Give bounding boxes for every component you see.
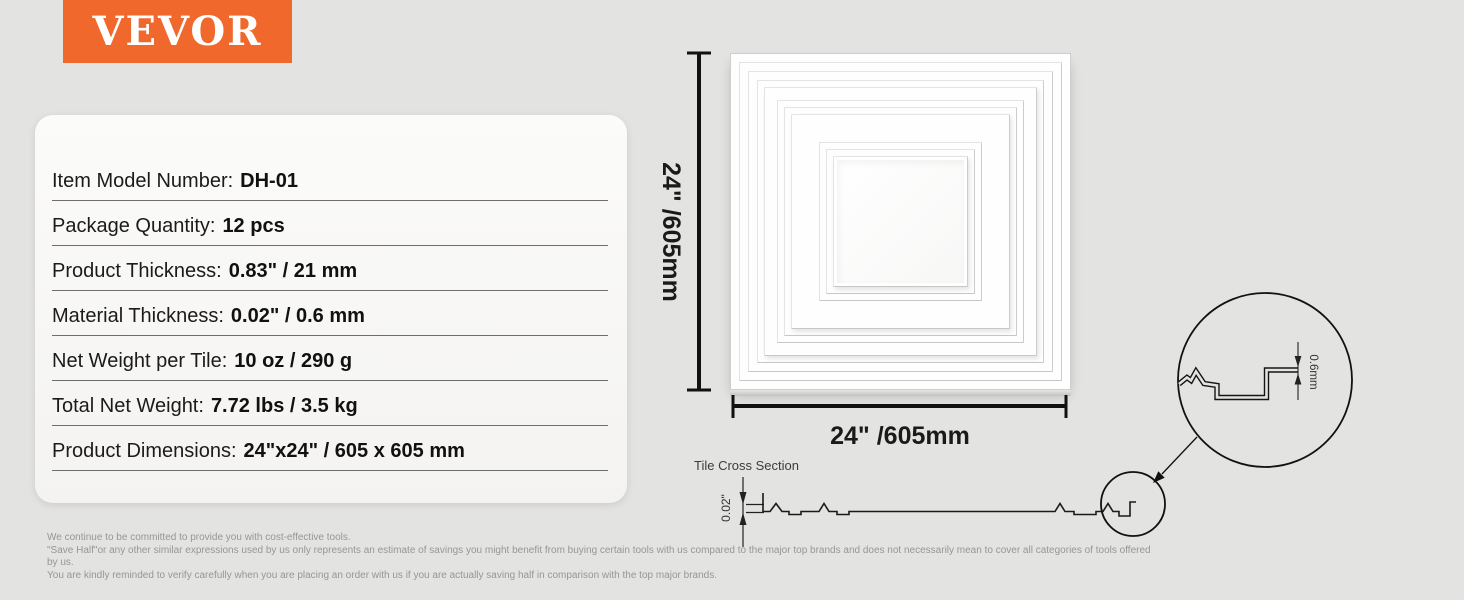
magnifier-leader <box>1153 437 1197 483</box>
magnifier-circle <box>1178 293 1352 467</box>
cross-section-thickness-label: 0.02" <box>719 494 733 522</box>
spec-row-product-thickness: Product Thickness: 0.83" / 21 mm <box>52 246 608 291</box>
spec-label: Product Dimensions: <box>52 440 237 463</box>
dim-arrow-down <box>740 492 747 505</box>
spec-label: Product Thickness: <box>52 260 222 283</box>
tile-center-panel <box>837 160 964 283</box>
tile-bottom-edge <box>730 390 1071 396</box>
cross-section-profile <box>763 493 1136 516</box>
spec-label: Total Net Weight: <box>52 395 204 418</box>
spec-value: 24"x24" / 605 x 605 mm <box>244 440 465 463</box>
spec-value: 0.83" / 21 mm <box>229 260 357 283</box>
spec-value: 0.02" / 0.6 mm <box>231 305 365 328</box>
spec-label: Material Thickness: <box>52 305 224 328</box>
detail-thickness-label: 0.6mm <box>1307 354 1319 389</box>
spec-row-quantity: Package Quantity: 12 pcs <box>52 201 608 246</box>
spec-label: Net Weight per Tile: <box>52 350 227 373</box>
dim-arrow-up <box>740 513 747 526</box>
ceiling-tile-diagram <box>730 53 1071 390</box>
footer-line: You are kindly reminded to verify carefu… <box>47 570 1157 583</box>
footer-disclaimer: We continue to be committed to provide y… <box>47 532 1157 582</box>
spec-value: DH-01 <box>240 170 298 193</box>
product-infographic: VEVOR Item Model Number: DH-01 Package Q… <box>0 0 1464 600</box>
spec-card: Item Model Number: DH-01 Package Quantit… <box>35 115 627 503</box>
vevor-logo-text: VEVOR <box>93 12 263 52</box>
footer-line: We continue to be committed to provide y… <box>47 532 1157 545</box>
vevor-logo: VEVOR <box>63 0 292 63</box>
tile-width-label: 24" /605mm <box>830 422 970 450</box>
cross-section-title: Tile Cross Section <box>694 458 799 473</box>
spec-label: Package Quantity: <box>52 215 215 238</box>
spec-value: 10 oz / 290 g <box>234 350 352 373</box>
spec-row-model: Item Model Number: DH-01 <box>52 156 608 201</box>
leader-arrowhead <box>1153 471 1165 483</box>
spec-value: 7.72 lbs / 3.5 kg <box>211 395 358 418</box>
tile-height-label: 24" /605mm <box>657 162 685 302</box>
spec-row-tile-weight: Net Weight per Tile: 10 oz / 290 g <box>52 336 608 381</box>
detail-profile-core <box>1179 370 1298 398</box>
detail-arrow-down <box>1295 356 1302 367</box>
spec-row-dimensions: Product Dimensions: 24"x24" / 605 x 605 … <box>52 426 608 471</box>
detail-arrow-up <box>1295 374 1302 385</box>
detail-callout-circle <box>1101 472 1165 536</box>
tile-width-dimension: 24" /605mm <box>733 395 1066 450</box>
footer-line: "Save Half"or any other similar expressi… <box>47 545 1157 570</box>
spec-row-net-weight: Total Net Weight: 7.72 lbs / 3.5 kg <box>52 381 608 426</box>
tile-height-dimension: 24" /605mm <box>657 53 711 390</box>
detail-profile-outer <box>1179 370 1298 398</box>
spec-row-material-thickness: Material Thickness: 0.02" / 0.6 mm <box>52 291 608 336</box>
spec-value: 12 pcs <box>222 215 284 238</box>
spec-label: Item Model Number: <box>52 170 233 193</box>
magnified-detail: 0.6mm <box>1178 293 1352 467</box>
